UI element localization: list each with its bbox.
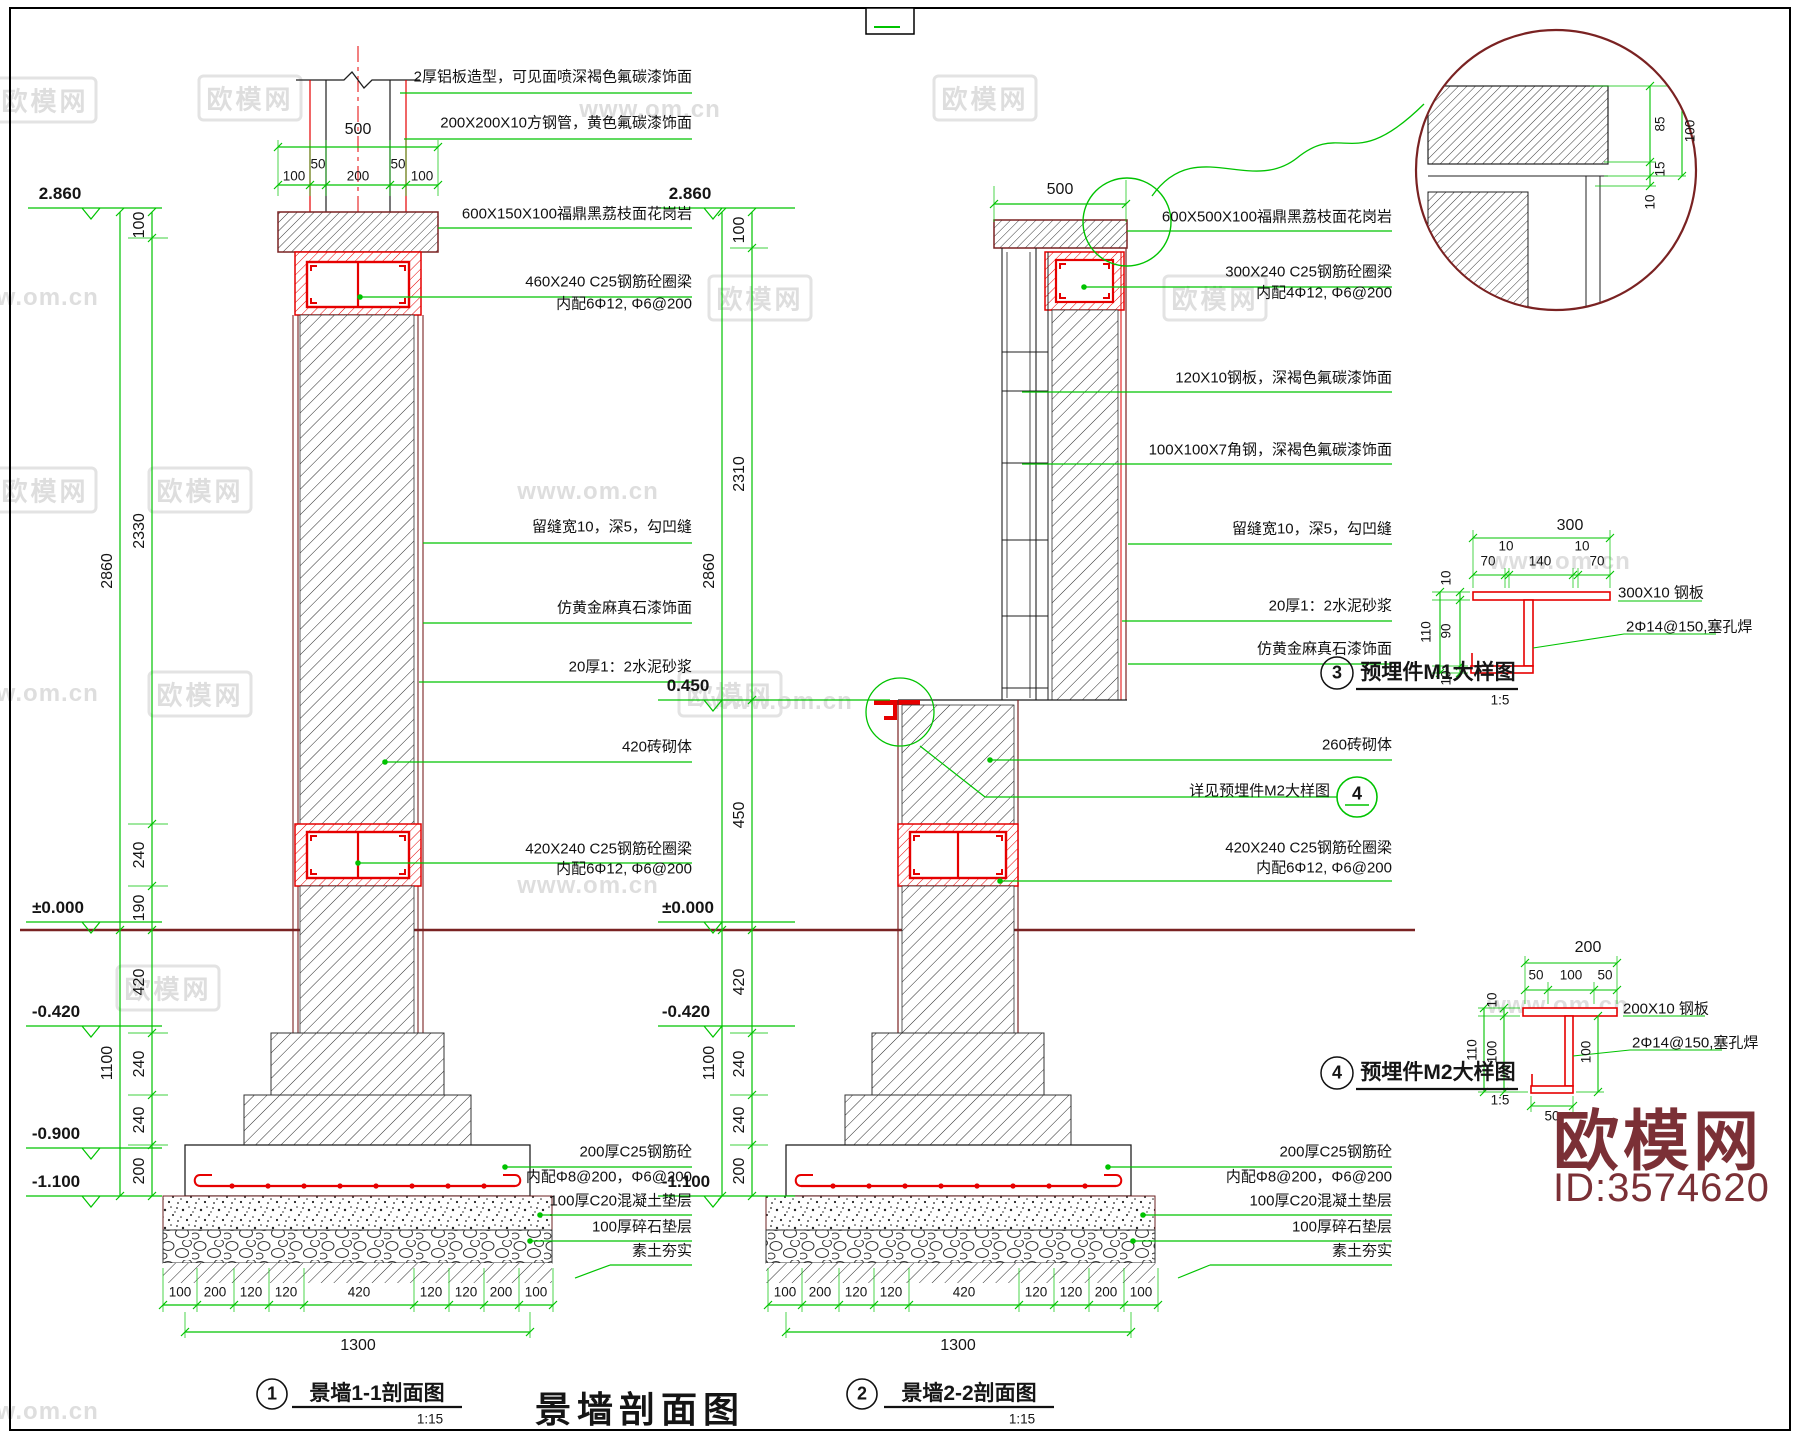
dim: 200	[131, 1158, 149, 1185]
dim: 2310	[731, 456, 749, 492]
dim: 200	[347, 169, 370, 184]
dim: 120	[1025, 1285, 1048, 1300]
callout: 300X10 钢板	[1618, 582, 1704, 603]
section-number: 2	[857, 1384, 867, 1405]
dim: 10	[1485, 992, 1500, 1007]
callout: 420X240 C25钢筋砼圈梁	[525, 838, 692, 859]
callout: 120X10钢板，深褐色氟碳漆饰面	[1175, 367, 1392, 388]
callout: 100厚C20混凝土垫层	[549, 1190, 692, 1211]
callout: 300X240 C25钢筋砼圈梁	[1225, 261, 1392, 282]
callout: 200厚C25钢筋砼	[579, 1141, 692, 1162]
detail-title: 预埋件M2大样图	[1360, 1056, 1515, 1086]
level-mark: 2.860	[39, 184, 82, 204]
callout: 200厚C25钢筋砼	[1279, 1141, 1392, 1162]
callout: 仿黄金麻真石漆饰面	[557, 597, 692, 618]
dim: 10	[1643, 194, 1658, 209]
dim: 15	[1653, 161, 1668, 176]
callout: 100厚C20混凝土垫层	[1249, 1190, 1392, 1211]
callout: 素土夯实	[1332, 1240, 1392, 1261]
callout: 100X100X7角钢，深褐色氟碳漆饰面	[1149, 439, 1392, 460]
drawing-linework	[0, 0, 1800, 1438]
callout: 内配6Φ12, Φ6@200	[556, 293, 692, 314]
dim: 200	[731, 1158, 749, 1185]
dim: 1100	[701, 1046, 719, 1080]
dim: 50	[310, 157, 325, 172]
callout: 420砖砌体	[622, 736, 692, 757]
dim: 200	[809, 1285, 832, 1300]
callout: 600X150X100福鼎黑荔枝面花岗岩	[462, 203, 692, 224]
section-title: 景墙1-1剖面图	[309, 1377, 444, 1407]
callout: 内配6Φ12, Φ6@200	[556, 858, 692, 879]
dim: 100	[283, 169, 306, 184]
section-title: 景墙2-2剖面图	[901, 1377, 1036, 1407]
dim: 120	[455, 1285, 478, 1300]
level-mark: -1.100	[662, 1172, 710, 1192]
dim: 70	[1589, 554, 1604, 569]
callout: 留缝宽10，深5，勾凹缝	[532, 516, 692, 537]
dim: 120	[880, 1285, 903, 1300]
level-mark: ±0.000	[32, 898, 84, 918]
dim: 50	[390, 157, 405, 172]
dim: 240	[731, 1051, 749, 1078]
callout: 100厚碎石垫层	[592, 1216, 692, 1237]
detail-scale: 1:5	[1491, 693, 1510, 708]
callout: 460X240 C25钢筋砼圈梁	[525, 271, 692, 292]
callout: 素土夯实	[632, 1240, 692, 1261]
callout: 2Φ14@150,塞孔焊	[1632, 1032, 1758, 1053]
section-scale: 1:15	[1009, 1412, 1035, 1427]
detail-bubble-number: 4	[1352, 784, 1362, 805]
dim: 1100	[99, 1046, 117, 1080]
detail-number: 3	[1332, 663, 1342, 684]
dim: 450	[731, 802, 749, 829]
section-2-linework	[766, 220, 1155, 1283]
dim: 10	[1498, 539, 1513, 554]
level-mark: -0.420	[662, 1002, 710, 1022]
dim: 85	[1653, 116, 1668, 131]
dim: 240	[131, 1107, 149, 1134]
dim: 50	[1528, 968, 1543, 983]
callout: 留缝宽10，深5，勾凹缝	[1232, 518, 1392, 539]
section-1-linework	[163, 46, 552, 1283]
level-mark: 0.450	[667, 676, 710, 696]
callout: 2Φ14@150,塞孔焊	[1626, 616, 1752, 637]
callout: 详见预埋件M2大样图	[1189, 780, 1330, 801]
dim: 120	[240, 1285, 263, 1300]
dim: 500	[345, 121, 372, 139]
dim: 300	[1557, 517, 1584, 535]
level-mark: -0.900	[32, 1124, 80, 1144]
callout: 20厚1：2水泥砂浆	[569, 656, 692, 677]
detail-number: 4	[1332, 1063, 1342, 1084]
dim: 120	[420, 1285, 443, 1300]
callout: 200X200X10方钢管，黄色氟碳漆饰面	[440, 112, 692, 133]
dim: 420	[731, 969, 749, 996]
dim: 2330	[131, 513, 149, 549]
dim: 100	[525, 1285, 548, 1300]
dim: 2860	[99, 553, 117, 589]
level-mark: -0.420	[32, 1002, 80, 1022]
section-scale: 1:15	[417, 1412, 443, 1427]
dim: 100	[1560, 968, 1583, 983]
dim: 420	[131, 969, 149, 996]
dim: 1300	[340, 1337, 376, 1355]
dim: 100	[731, 217, 749, 244]
dim: 120	[1060, 1285, 1083, 1300]
dim: 100	[411, 169, 434, 184]
dim: 120	[275, 1285, 298, 1300]
level-mark: -1.100	[32, 1172, 80, 1192]
dim: 240	[131, 842, 149, 869]
callout: 600X500X100福鼎黑荔枝面花岗岩	[1162, 206, 1392, 227]
dim: 120	[845, 1285, 868, 1300]
dim: 1300	[940, 1337, 976, 1355]
callout: 260砖砌体	[1322, 734, 1392, 755]
dim: 240	[731, 1107, 749, 1134]
dim: 140	[1529, 554, 1552, 569]
callout: 20厚1：2水泥砂浆	[1269, 595, 1392, 616]
dim: 10	[1439, 570, 1454, 585]
dim: 100	[1579, 1041, 1594, 1064]
dim: 200	[1095, 1285, 1118, 1300]
dim: 100	[169, 1285, 192, 1300]
dim: 90	[1439, 623, 1454, 638]
dim: 100	[774, 1285, 797, 1300]
dim: 500	[1047, 181, 1074, 199]
dim: 240	[131, 1051, 149, 1078]
callout: 内配4Φ12, Φ6@200	[1256, 282, 1392, 303]
dim: 10	[1574, 539, 1589, 554]
callout: 内配6Φ12, Φ6@200	[1256, 857, 1392, 878]
dim: 2860	[701, 553, 719, 589]
level-mark: 2.860	[669, 184, 712, 204]
callout: 2厚铝板造型，可见面喷深褐色氟碳漆饰面	[414, 66, 692, 87]
dim: 190	[131, 895, 149, 922]
section-number: 1	[267, 1384, 277, 1405]
dim: 200	[1575, 939, 1602, 957]
dim: 50	[1597, 968, 1612, 983]
callout: 200X10 钢板	[1623, 998, 1709, 1019]
dim: 420	[953, 1285, 976, 1300]
cad-sheet: 欧模网 欧模网 欧模网 欧模网 欧模网 欧模网 欧模网 欧模网 欧模网 欧模网 …	[0, 0, 1800, 1438]
dim: 100	[131, 212, 149, 239]
dim: 70	[1480, 554, 1495, 569]
dim: 420	[348, 1285, 371, 1300]
dim: 100	[1683, 120, 1698, 143]
detail-scale: 1:5	[1491, 1093, 1510, 1108]
callout: 100厚碎石垫层	[1292, 1216, 1392, 1237]
dim: 200	[204, 1285, 227, 1300]
model-id: ID:3574620	[1553, 1166, 1770, 1211]
detail-title: 预埋件M1大样图	[1360, 656, 1515, 686]
dim: 100	[1130, 1285, 1153, 1300]
level-mark: ±0.000	[662, 898, 714, 918]
dim: 200	[490, 1285, 513, 1300]
callout: 420X240 C25钢筋砼圈梁	[1225, 837, 1392, 858]
callout: 内配Φ8@200，Φ6@200	[1226, 1166, 1392, 1187]
dim: 110	[1419, 621, 1434, 643]
drawing-title: 景墙剖面图	[535, 1381, 745, 1433]
